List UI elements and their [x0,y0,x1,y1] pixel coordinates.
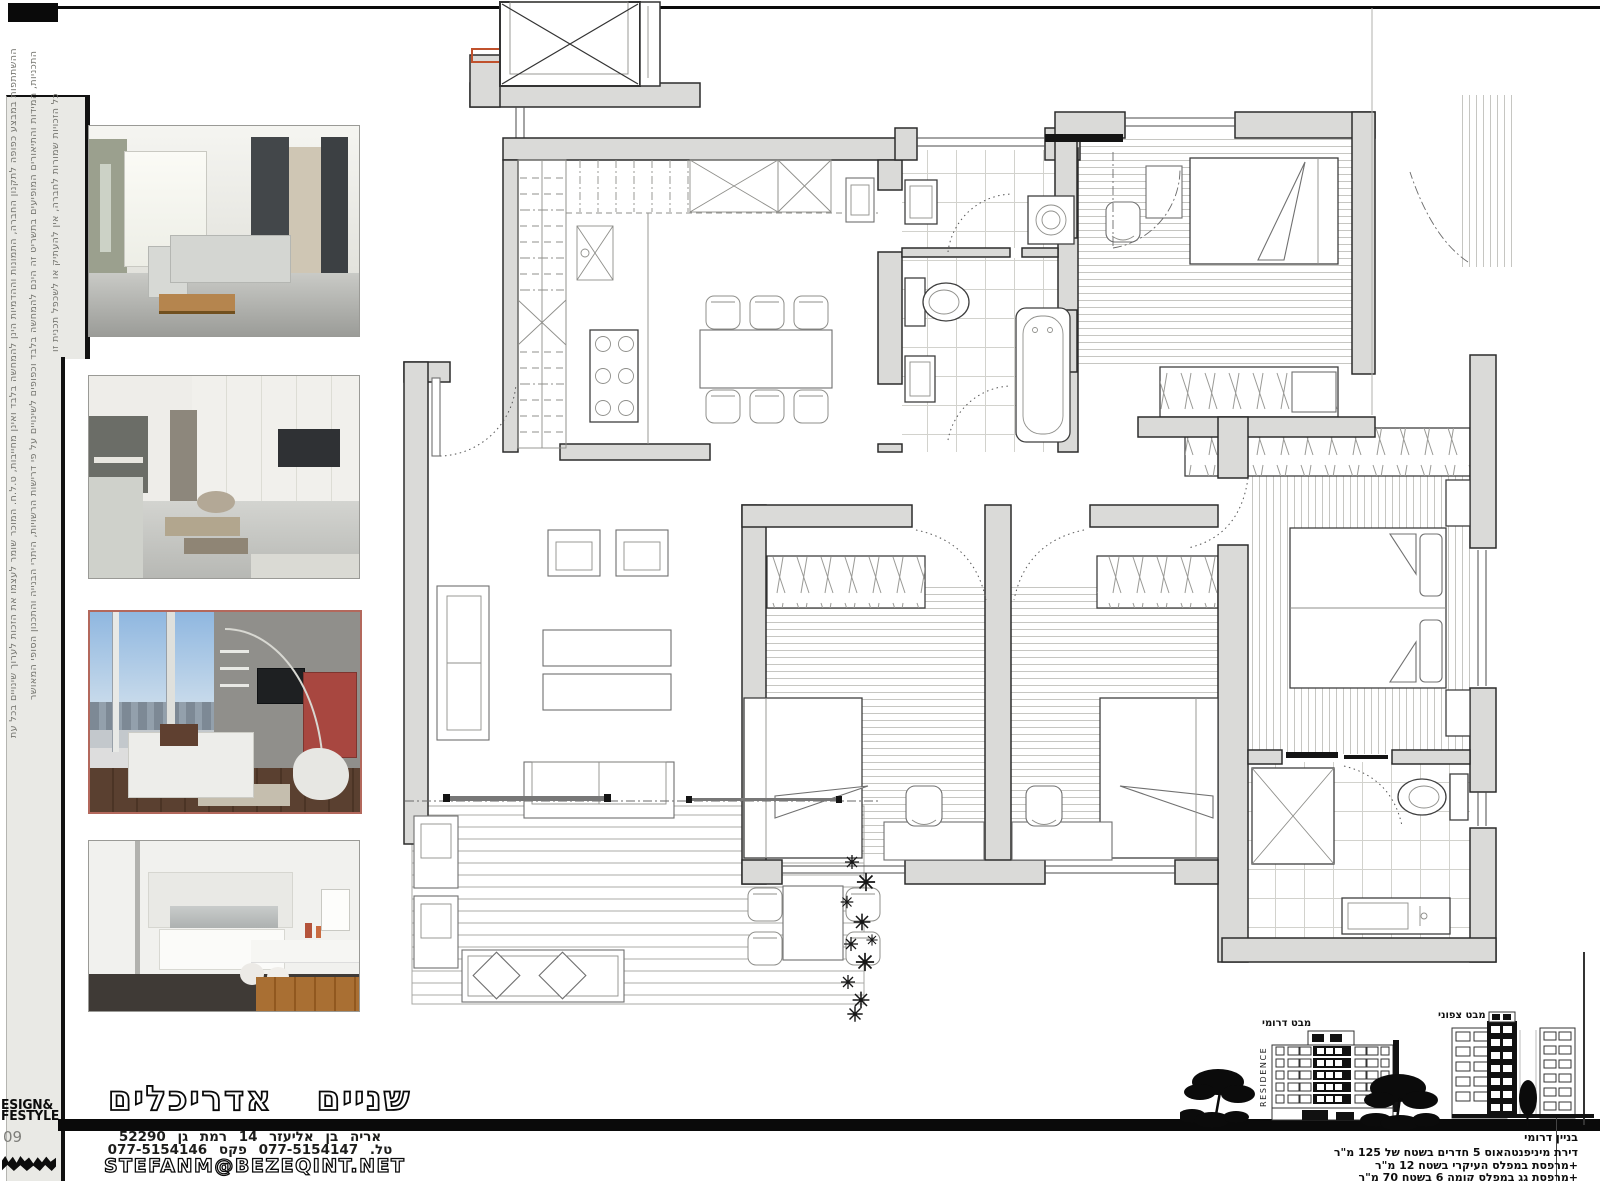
sidebar-disclaimer-line-3: ההשתתפות במבצע כפופה לתקנון החברה, התמונ… [8,48,19,738]
kitchen [518,160,878,448]
residence-vertical-label: RESIDENCE [1259,1047,1268,1107]
masthead-issue-number: 09 [3,1128,22,1146]
photo-minimal-living [88,375,360,579]
photo-living-room-sectional [88,125,360,337]
studio-logo: שניים אדריכלים [108,1082,411,1116]
apartment-notes-building: בניין דרומי [1334,1131,1578,1144]
elevator-shaft [470,2,700,138]
studio-email: STEFANM@BEZEQINT.NET [104,1157,404,1176]
photo-cityview-living [88,610,362,814]
north-elevation-label: מבט צפוני [1438,1010,1486,1021]
apartment-notes-line1: דירת מיניפנטהאוס 5 חדרים בשטח של 125 מ"ר [1334,1147,1578,1160]
sidebar-disclaimer-line-1: כל הזכויות שמורות לחברה, אין להעתיק או ל… [50,93,61,352]
floor-plan: .wl{fill:#dadad8;stroke:#2c2c2c;stroke-w… [395,0,1600,1030]
apartment-notes-line3: +מרפסת גג במפלס קומה 6 בשטח 70 מ"ר [1334,1172,1578,1181]
presentation-page: כל הזכויות שמורות לחברה, אין להעתיק או ל… [0,0,1600,1181]
photo-white-kitchen [88,840,360,1012]
sidebar-disclaimer-line-2: התכניות, המידות והתיאורים המופיעים בתשרי… [28,51,39,700]
masthead-brand-line2: FESTYLE [1,1111,59,1122]
south-elevation-label: מבט דרומי [1262,1018,1311,1029]
apartment-notes: בניין דרומי דירת מיניפנטהאוס 5 חדרים בשט… [1334,1131,1578,1181]
corner-black-block [8,3,58,22]
